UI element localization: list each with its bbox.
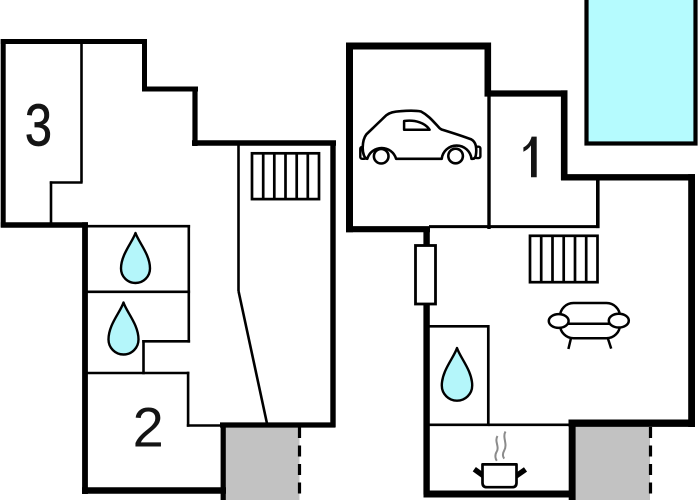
svg-text:3: 3 xyxy=(25,92,52,159)
svg-text:2: 2 xyxy=(133,395,164,458)
